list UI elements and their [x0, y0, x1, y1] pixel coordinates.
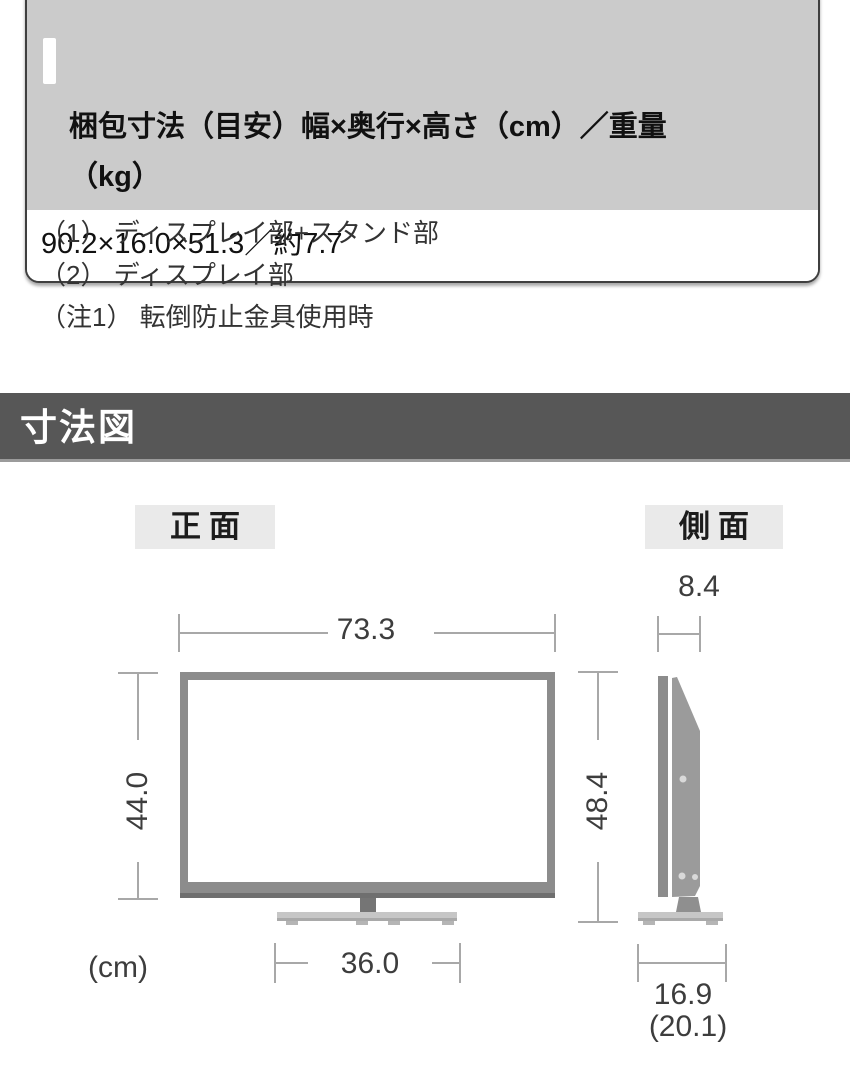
header-marker-bar	[43, 38, 56, 84]
dimension-diagram: 正面 側面 73.3 44.0 48.4 36.0 8.4 16.9 (20.1…	[0, 465, 850, 1080]
dimension-front-height: 44.0	[118, 741, 158, 861]
section-bar-dimension-diagram: 寸法図	[0, 393, 850, 462]
front-view-label: 正面	[135, 505, 275, 549]
dimension-total-height: 48.4	[578, 741, 618, 861]
dimension-stand-depth-alt: (20.1)	[628, 1007, 748, 1047]
packaging-dimensions-header: 梱包寸法（目安）幅×奥行×高さ（cm）／重量 （kg）	[27, 0, 818, 210]
dimension-stand-width: 36.0	[310, 944, 430, 984]
packaging-dimensions-header-text: 梱包寸法（目安）幅×奥行×高さ（cm）／重量 （kg）	[69, 111, 667, 193]
footnote-2: （2） ディスプレイ部	[40, 254, 439, 296]
tv-front-view	[180, 672, 555, 925]
tv-side-stand-neck	[676, 897, 701, 912]
footnote-3: （注1） 転倒防止金具使用時	[40, 296, 439, 338]
footnotes: （1） ディスプレイ部+スタンド部 （2） ディスプレイ部 （注1） 転倒防止金…	[40, 212, 439, 338]
unit-label-cm: (cm)	[58, 948, 178, 988]
section-title: 寸法図	[0, 393, 850, 462]
product-spec-page: 梱包寸法（目安）幅×奥行×高さ（cm）／重量 （kg） 90.2×16.0×51…	[0, 0, 850, 1080]
tv-front-stand-neck	[360, 898, 376, 912]
dimension-side-depth: 8.4	[639, 567, 759, 607]
footnote-1: （1） ディスプレイ部+スタンド部	[40, 212, 439, 254]
side-view-label: 側面	[645, 505, 783, 549]
tv-side-view	[638, 676, 723, 925]
dimension-front-width: 73.3	[306, 610, 426, 650]
